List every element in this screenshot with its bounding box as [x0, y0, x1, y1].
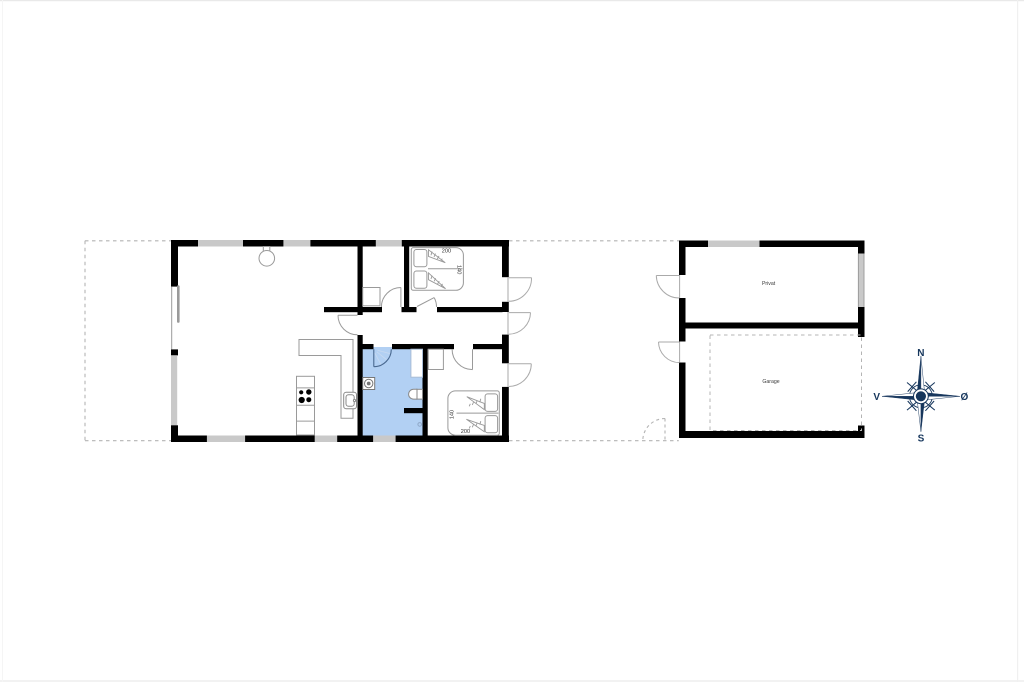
svg-text:200: 200	[461, 429, 470, 435]
svg-text:140: 140	[456, 265, 462, 274]
svg-text:S: S	[918, 434, 925, 445]
svg-text:Ø: Ø	[961, 392, 969, 403]
svg-text:140: 140	[449, 410, 455, 419]
svg-text:N: N	[917, 348, 924, 359]
svg-text:Privat: Privat	[762, 281, 776, 287]
svg-text:Garage: Garage	[762, 379, 779, 385]
svg-text:200: 200	[442, 249, 451, 255]
svg-text:V: V	[873, 392, 880, 403]
